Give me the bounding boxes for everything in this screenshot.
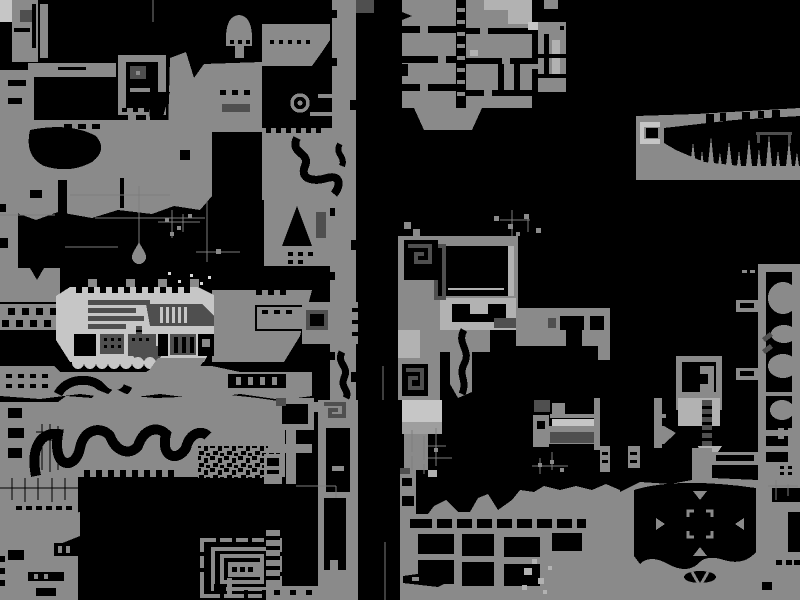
map-canvas[interactable]: [0, 0, 800, 600]
ladder-column: [266, 530, 280, 588]
dock-bracket: [640, 122, 660, 144]
left-tick-rows: [0, 304, 60, 330]
spike-corridor: [636, 108, 800, 180]
map-viewport[interactable]: [0, 0, 800, 600]
